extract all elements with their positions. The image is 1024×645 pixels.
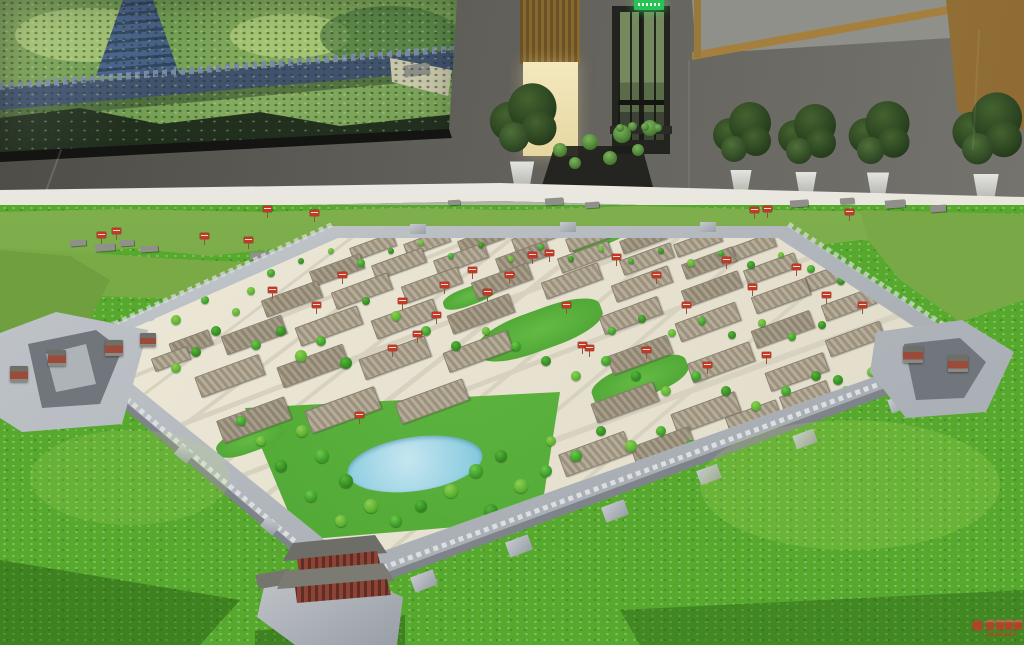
model-tree [171, 315, 181, 325]
potted-plant [776, 102, 836, 202]
wood-beam-vertical [694, 0, 701, 58]
model-tree [232, 308, 240, 316]
model-tree [390, 515, 402, 527]
sign-plaque [822, 292, 831, 298]
model-tree [658, 248, 664, 254]
sign-plaque [682, 302, 691, 308]
model-tree [788, 333, 796, 341]
model-tree [444, 484, 458, 498]
ruin-model [70, 239, 86, 246]
model-tree [668, 329, 676, 337]
small-plant [553, 143, 567, 157]
model-tree [357, 259, 365, 267]
grass-highlight-left [30, 430, 230, 525]
watermark-glyph [986, 620, 994, 630]
model-tree [495, 450, 507, 462]
sign-plaque [97, 232, 106, 238]
model-tree [298, 258, 304, 264]
model-tree [751, 401, 761, 411]
sign-plaque [845, 209, 854, 215]
model-tree [448, 253, 454, 259]
model-tree [451, 341, 461, 351]
model-tree [758, 319, 766, 327]
model-tree [811, 371, 821, 381]
watermark-logo-icon [972, 620, 983, 631]
gate-tower [903, 346, 923, 363]
model-tree [267, 269, 275, 277]
model-tree [596, 426, 606, 436]
model-tree [251, 340, 261, 350]
gate-tower [140, 333, 156, 347]
model-tree [601, 356, 611, 366]
model-tree [571, 371, 581, 381]
sign-plaque [468, 267, 477, 273]
sign-plaque [432, 312, 441, 318]
glass-door-rail [618, 100, 664, 105]
model-tree [625, 440, 637, 452]
model-tree [514, 479, 528, 493]
small-plant [641, 123, 649, 131]
sign-plaque [200, 233, 209, 239]
ruin-model [840, 198, 854, 205]
sign-plaque [750, 207, 759, 213]
plant-foliage [499, 122, 529, 152]
sign-plaque [642, 347, 651, 353]
sign-plaque [528, 252, 537, 258]
model-tree [818, 321, 826, 329]
model-tree [478, 242, 484, 248]
model-tree [540, 465, 552, 477]
main-gate-tower [255, 535, 405, 645]
sign-plaque [748, 284, 757, 290]
ruin-model [140, 245, 158, 252]
potted-plant [950, 90, 1022, 210]
model-tree [482, 327, 490, 335]
sign-plaque [722, 257, 731, 263]
model-tree [340, 357, 352, 369]
sign-plaque [858, 302, 867, 308]
small-plant [616, 124, 624, 132]
model-tree [191, 347, 201, 357]
ruin-model [790, 199, 808, 207]
model-tree [747, 261, 755, 269]
exit-sign [634, 0, 664, 10]
sign-plaque [388, 345, 397, 351]
sign-plaque [268, 287, 277, 293]
model-tree [661, 386, 671, 396]
ruin-model [545, 197, 563, 205]
ruin-model [585, 202, 599, 209]
sign-plaque [413, 331, 422, 337]
model-tree [728, 331, 736, 339]
plant-foliage [857, 137, 884, 164]
model-tree [171, 363, 181, 373]
model-tree [276, 326, 286, 336]
sign-plaque [338, 272, 347, 278]
glass-door-mullion [639, 12, 642, 140]
potted-plant [711, 100, 771, 200]
ruin-model [885, 199, 906, 208]
sign-plaque [440, 282, 449, 288]
model-tree [469, 464, 483, 478]
model-tree [388, 248, 394, 254]
exhibit-photo [0, 0, 1024, 645]
gate-tower [948, 355, 968, 372]
sign-plaque [310, 210, 319, 216]
sign-plaque [792, 264, 801, 270]
wood-slat-panel [520, 0, 580, 64]
model-tree [339, 474, 353, 488]
model-tree [305, 490, 317, 502]
photo-watermark [972, 618, 1022, 642]
model-tree [335, 515, 347, 527]
model-tree [546, 436, 556, 446]
sign-plaque [483, 289, 492, 295]
model-tree [391, 311, 401, 321]
small-plant [628, 122, 637, 131]
small-plant [632, 144, 644, 156]
model-tree [698, 317, 706, 325]
small-plant [654, 124, 662, 132]
model-tree [638, 315, 646, 323]
sign-plaque [312, 302, 321, 308]
watermark-glyph [1005, 620, 1013, 630]
model-tree [247, 287, 255, 295]
model-tree [296, 425, 308, 437]
building-block [442, 330, 513, 373]
ruin-model [448, 200, 460, 206]
sign-plaque [763, 206, 772, 212]
model-tree [364, 499, 378, 513]
watermark-glyph [1014, 620, 1022, 630]
sign-plaque [244, 237, 253, 243]
model-tree [508, 256, 514, 262]
model-tree [628, 258, 634, 264]
model-tree [718, 250, 724, 256]
ruin-model [930, 204, 946, 212]
model-tree [256, 436, 266, 446]
sign-plaque [112, 228, 121, 234]
model-tree [691, 371, 701, 381]
wall-bastion [700, 222, 716, 232]
ruin-model [120, 240, 134, 247]
potted-plant [847, 99, 910, 204]
model-tree [598, 246, 604, 252]
model-tree [807, 265, 815, 273]
glass-reflection [688, 60, 690, 190]
gate-tower [48, 350, 66, 366]
model-tree [328, 248, 334, 254]
watermark-subtext [986, 633, 1016, 636]
model-tree [687, 259, 695, 267]
model-tree [415, 500, 427, 512]
sign-plaque [612, 254, 621, 260]
model-tree [275, 460, 287, 472]
model-tree [211, 326, 221, 336]
gate-tower [105, 340, 123, 356]
building-block [611, 265, 674, 302]
small-plant [582, 134, 598, 150]
model-tree [568, 256, 574, 262]
model-tree [538, 244, 544, 250]
model-tree [421, 326, 431, 336]
grass-highlight-right [700, 420, 1000, 550]
model-tree [418, 240, 424, 246]
sign-plaque [355, 412, 364, 418]
ruin-model [95, 243, 115, 251]
model-tree [833, 375, 843, 385]
model-tree [236, 416, 246, 426]
model-tree [656, 426, 666, 436]
small-plant [603, 151, 617, 165]
sign-plaque [585, 345, 594, 351]
building-block [751, 278, 812, 315]
plant-foliage [786, 138, 812, 164]
wall-bastion [560, 222, 576, 232]
plant-foliage [721, 136, 747, 162]
sign-plaque [652, 272, 661, 278]
model-tree [316, 336, 326, 346]
gate-tower [10, 366, 28, 382]
model-tree [608, 327, 616, 335]
sign-plaque [545, 250, 554, 256]
building-block [743, 252, 799, 286]
model-tree [362, 297, 370, 305]
sign-plaque [263, 206, 272, 212]
building-block [276, 344, 349, 389]
model-tree [721, 386, 731, 396]
model-tree [631, 371, 641, 381]
sign-plaque [762, 352, 771, 358]
model-tree [511, 341, 521, 351]
sign-plaque [562, 302, 571, 308]
model-tree [570, 450, 582, 462]
sign-plaque [703, 362, 712, 368]
model-tree [295, 350, 307, 362]
sign-plaque [505, 272, 514, 278]
model-tree [778, 252, 784, 258]
model-tree [541, 356, 551, 366]
sign-plaque [398, 298, 407, 304]
watermark-glyph [996, 620, 1004, 630]
potted-plant [488, 81, 557, 196]
wall-bastion [410, 224, 426, 234]
small-plant [569, 157, 581, 169]
model-tree [781, 386, 791, 396]
model-tree [315, 449, 329, 463]
plant-foliage [962, 133, 993, 164]
